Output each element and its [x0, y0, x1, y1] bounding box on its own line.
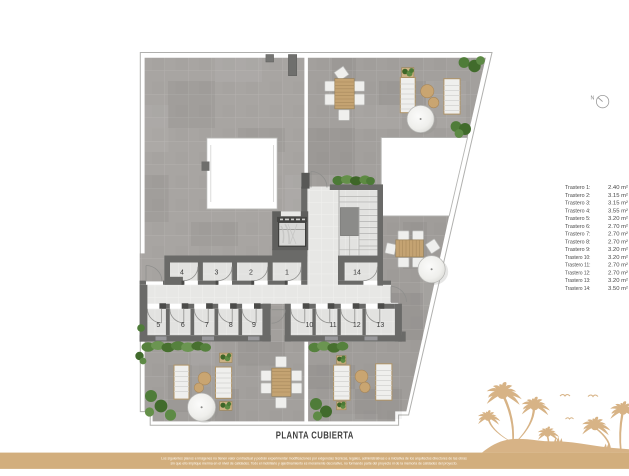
svg-text:Trastero 5:: Trastero 5:: [565, 216, 591, 222]
svg-text:5: 5: [156, 322, 160, 329]
svg-text:Trastero 3:: Trastero 3:: [565, 201, 591, 207]
svg-text:N: N: [591, 96, 595, 102]
svg-text:10: 10: [306, 322, 314, 329]
svg-text:2.70 m²: 2.70 m²: [608, 270, 628, 276]
svg-text:Trastero 8:: Trastero 8:: [565, 239, 591, 245]
svg-text:1: 1: [285, 270, 289, 277]
svg-text:8: 8: [229, 322, 233, 329]
svg-text:PLANTA CUBIERTA: PLANTA CUBIERTA: [276, 430, 354, 441]
svg-text:Trastero 6:: Trastero 6:: [565, 224, 591, 230]
svg-text:Trastero 13:: Trastero 13:: [565, 278, 591, 284]
svg-text:12: 12: [353, 322, 361, 329]
svg-text:Trastero 9:: Trastero 9:: [565, 247, 591, 253]
svg-text:Trastero 4:: Trastero 4:: [565, 208, 591, 214]
svg-text:Trastero 14:: Trastero 14:: [565, 286, 591, 292]
svg-text:3.15 m²: 3.15 m²: [608, 193, 628, 199]
svg-text:3.55 m²: 3.55 m²: [608, 208, 628, 214]
svg-text:2.70 m²: 2.70 m²: [608, 224, 628, 230]
svg-text:Trastero 7:: Trastero 7:: [565, 232, 591, 238]
svg-text:13: 13: [377, 322, 385, 329]
svg-text:Trastero 10:: Trastero 10:: [565, 255, 591, 261]
svg-text:4: 4: [180, 270, 184, 277]
svg-text:3.15 m²: 3.15 m²: [608, 201, 628, 207]
svg-text:3.20 m²: 3.20 m²: [608, 278, 628, 284]
svg-text:2: 2: [249, 270, 253, 277]
svg-text:2.70 m²: 2.70 m²: [608, 263, 628, 269]
svg-text:Trastero 11:: Trastero 11:: [565, 263, 591, 269]
svg-text:2.70 m²: 2.70 m²: [608, 232, 628, 238]
svg-text:Trastero 12:: Trastero 12:: [565, 270, 591, 276]
svg-text:sin que ello implique merma en: sin que ello implique merma en el nivel …: [171, 461, 458, 465]
svg-text:3.20 m²: 3.20 m²: [608, 247, 628, 253]
svg-text:2.40 m²: 2.40 m²: [608, 185, 628, 191]
svg-text:Trastero 2:: Trastero 2:: [565, 193, 591, 199]
svg-text:6: 6: [181, 322, 185, 329]
svg-text:2.70 m²: 2.70 m²: [608, 239, 628, 245]
svg-text:3.20 m²: 3.20 m²: [608, 255, 628, 261]
svg-text:3.50 m²: 3.50 m²: [608, 286, 628, 292]
svg-text:11: 11: [329, 322, 336, 329]
svg-text:Trastero 1:: Trastero 1:: [565, 185, 591, 191]
svg-text:3.20 m²: 3.20 m²: [608, 216, 628, 222]
svg-text:3: 3: [215, 270, 219, 277]
svg-text:9: 9: [252, 322, 256, 329]
svg-text:Los siguientes planos e imágen: Los siguientes planos e imágenes no tien…: [161, 456, 467, 460]
svg-text:14: 14: [353, 270, 361, 277]
svg-text:7: 7: [205, 322, 209, 329]
